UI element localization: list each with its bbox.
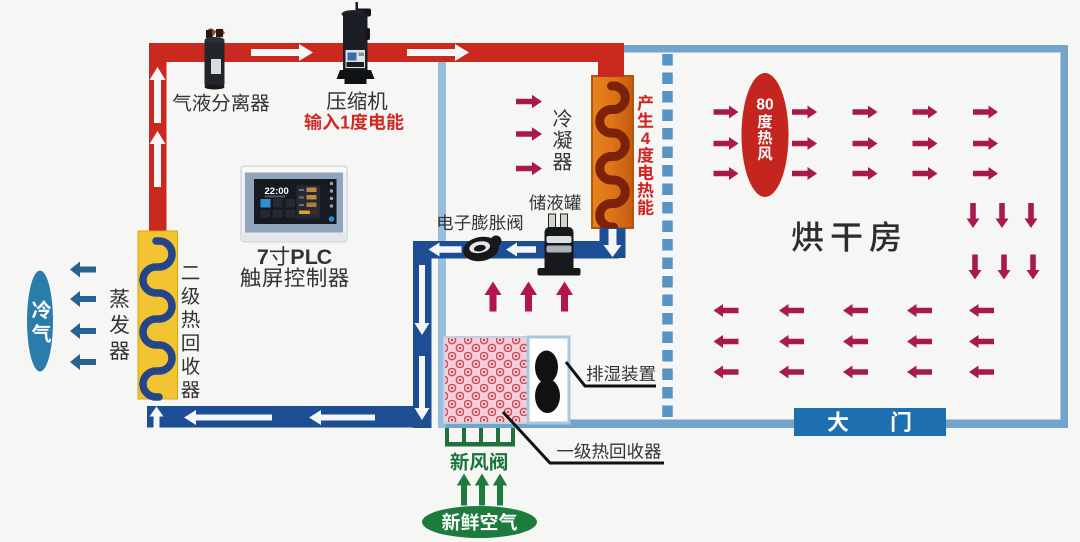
svg-text:0: 0: [765, 97, 774, 114]
svg-text:1: 1: [340, 113, 350, 133]
svg-text:C: C: [317, 245, 333, 269]
svg-text:4: 4: [641, 129, 651, 148]
svg-text:22:00: 22:00: [265, 186, 289, 197]
svg-text:7: 7: [257, 245, 269, 269]
svg-text:P: P: [290, 245, 304, 269]
